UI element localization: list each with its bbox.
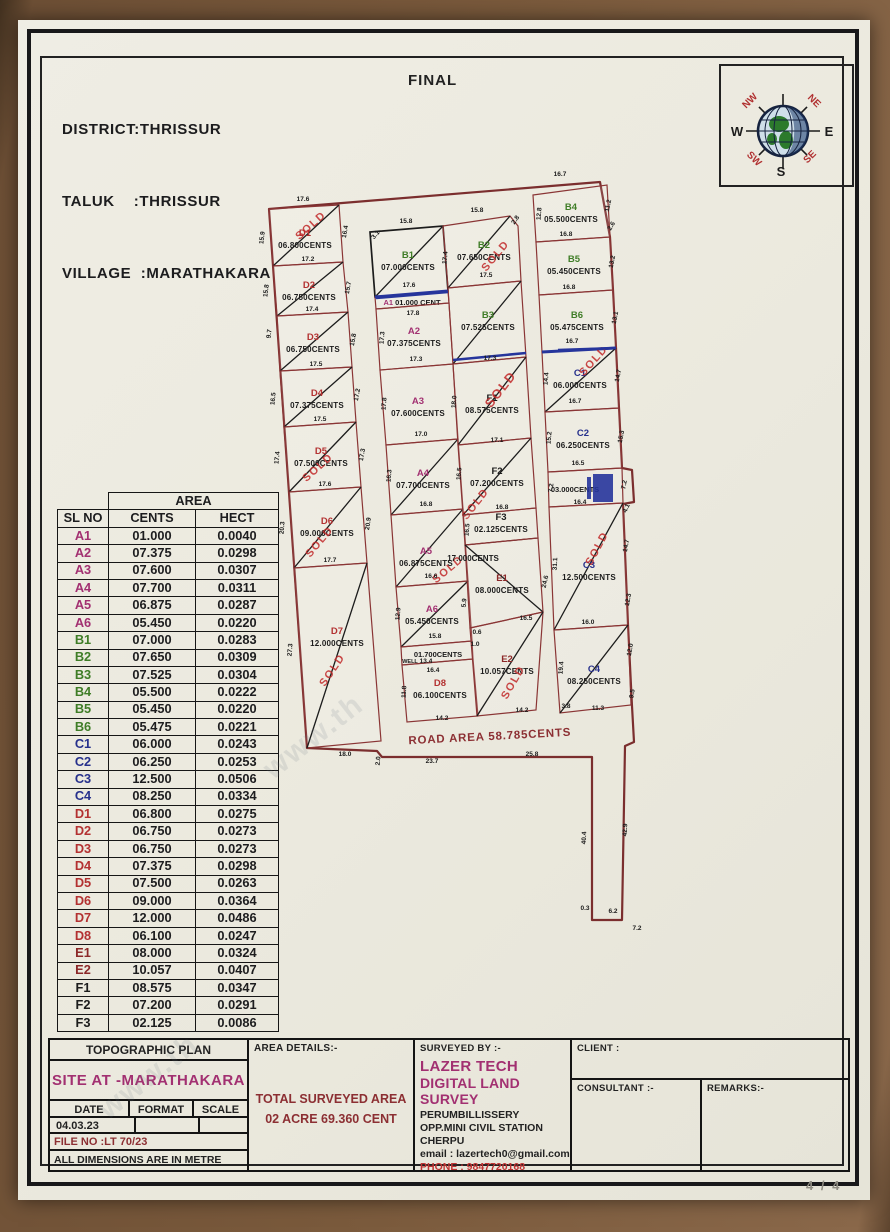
plot-area-label: 07.600CENTS (391, 409, 445, 418)
plot-id-label: D3 (307, 332, 319, 343)
sl-no-cell: F3 (58, 1014, 109, 1031)
sl-no-cell: C3 (58, 771, 109, 788)
file-no: FILE NO :LT 70/23 (50, 1134, 247, 1151)
dimension-label: 7.2 (548, 483, 556, 493)
dimension-label: 1.0 (470, 641, 479, 648)
dimension-label: 17.5 (480, 272, 493, 279)
dimension-label: 16.5 (572, 460, 585, 467)
plot-D8: D806.100CENTS (402, 659, 478, 722)
company-name-1: LAZER TECH (415, 1054, 570, 1075)
dimension-label: 16.8 (420, 501, 433, 508)
cents-cell: 05.475 (109, 719, 196, 736)
table-row-B3: B307.5250.0304 (58, 666, 279, 683)
road-area-label: ROAD AREA 58.785CENTS (408, 727, 571, 748)
table-row-D3: D306.7500.0273 (58, 840, 279, 857)
sl-no-cell: A4 (58, 579, 109, 596)
cents-cell: 07.525 (109, 666, 196, 683)
table-row-B4: B405.5000.0222 (58, 684, 279, 701)
dimension-label: 17.3 (378, 331, 386, 345)
plot-area-label: 07.700CENTS (396, 481, 450, 490)
surveyed-by-label: SURVEYED BY :- (415, 1040, 570, 1054)
dimension-label: 15.2 (545, 431, 553, 445)
plot-area-label: 12.000CENTS (310, 639, 364, 648)
scale-value (200, 1118, 247, 1134)
dimension-label: 18.0 (450, 395, 458, 409)
plot-C4: C408.250CENTS (554, 625, 631, 713)
sl-no-cell: E2 (58, 962, 109, 979)
dimension-label: 16.5 (463, 523, 471, 537)
dimension-label: 5.9 (461, 598, 469, 608)
cents-cell: 05.500 (109, 684, 196, 701)
col-header-hect: HECT (196, 510, 279, 527)
plot-area-label: 08.000CENTS (475, 586, 529, 595)
dimension-label: 16.0 (582, 619, 595, 626)
sl-no-cell: F2 (58, 997, 109, 1014)
hect-cell: 0.0407 (196, 962, 279, 979)
hect-cell: 0.0221 (196, 719, 279, 736)
consultant-block: CONSULTANT :- (572, 1080, 702, 1170)
surveyed-by-block: SURVEYED BY :- LAZER TECH DIGITAL LAND S… (415, 1040, 572, 1170)
plot-id-label: F3 (495, 512, 506, 523)
dimension-label: 17.4 (273, 451, 281, 465)
plot-area-label: 12.500CENTS (562, 573, 616, 582)
sl-no-cell: B2 (58, 649, 109, 666)
sl-no-cell: D3 (58, 840, 109, 857)
plot-id-label: E2 (501, 654, 513, 665)
table-row-A2: A207.3750.0298 (58, 545, 279, 562)
dimension-label: 17.5 (314, 416, 327, 423)
dimension-label: 16.5 (520, 615, 533, 622)
dimension-label: 24.6 (541, 574, 551, 588)
plot-area-label: 05.475CENTS (550, 323, 604, 332)
dimension-label: 17.5 (310, 361, 323, 368)
plot-B3: B307.525CENTS (448, 281, 526, 364)
dimension-label: 16.6 (425, 573, 438, 580)
dimension-label: 17.8 (380, 397, 388, 411)
dimension-label: 17.3 (410, 356, 423, 363)
sl-no-cell: D5 (58, 875, 109, 892)
plot-id-label: D8 (434, 678, 446, 689)
dimension-label: 13.4 (420, 658, 433, 665)
plot-area-label: 07.375CENTS (387, 339, 441, 348)
dimension-label: 20.9 (364, 517, 373, 531)
plot-id-label: A6 (426, 604, 438, 615)
building-symbol (587, 477, 591, 499)
hect-cell: 0.0040 (196, 527, 279, 544)
area-details-block: AREA DETAILS:- TOTAL SURVEYED AREA 02 AC… (249, 1040, 415, 1170)
dimensions-note: ALL DIMENSIONS ARE IN METRE (50, 1151, 247, 1166)
dimension-label: 27.3 (287, 643, 295, 656)
table-row-D6: D609.0000.0364 (58, 892, 279, 909)
sl-no-cell: E1 (58, 945, 109, 962)
plot-id-label: B5 (568, 254, 581, 265)
remarks-label: REMARKS:- (702, 1080, 848, 1094)
table-row-A5: A506.8750.0287 (58, 597, 279, 614)
cents-cell: 01.000 (109, 527, 196, 544)
hect-cell: 0.0309 (196, 649, 279, 666)
sl-no-cell: B1 (58, 632, 109, 649)
hect-cell: 0.0506 (196, 771, 279, 788)
cents-cell: 06.750 (109, 823, 196, 840)
area-table: AREA SL NOCENTSHECT A101.0000.0040A207.3… (57, 492, 279, 1032)
cents-cell: 05.450 (109, 614, 196, 631)
dimension-label: 16.8 (496, 504, 509, 511)
phone-line: PHONE : 9847720168 (415, 1160, 570, 1173)
dimension-label: 0.6 (472, 629, 481, 636)
hect-cell: 0.0304 (196, 666, 279, 683)
dimension-label: 3.8 (561, 703, 570, 710)
table-row-A3: A307.6000.0307 (58, 562, 279, 579)
table-row-A6: A605.4500.0220 (58, 614, 279, 631)
dimension-label: 17.3 (484, 355, 497, 362)
table-row-D8: D806.1000.0247 (58, 927, 279, 944)
sl-no-cell: D8 (58, 927, 109, 944)
dimension-label: 17.2 (353, 388, 362, 402)
sl-no-cell: F1 (58, 979, 109, 996)
table-row-B5: B505.4500.0220 (58, 701, 279, 718)
plot-area-label: 06.100CENTS (413, 691, 467, 700)
dimension-label: 12.0 (626, 643, 635, 657)
hect-cell: 0.0247 (196, 927, 279, 944)
plot-area-label: 02.125CENTS (474, 525, 528, 534)
hect-cell: 0.0311 (196, 579, 279, 596)
dimension-label: 15.8 (400, 218, 413, 225)
dimension-label: 17.7 (324, 557, 337, 564)
plot-id-label: D2 (303, 280, 315, 291)
table-row-F1: F108.5750.0347 (58, 979, 279, 996)
sl-no-cell: A5 (58, 597, 109, 614)
dimension-label: 16.4 (341, 225, 350, 239)
hect-cell: 0.0222 (196, 684, 279, 701)
table-row-F3: F302.1250.0086 (58, 1014, 279, 1031)
plot-area-label: 05.500CENTS (544, 215, 598, 224)
table-row-A4: A407.7000.0311 (58, 579, 279, 596)
dimension-label: 15.3 (617, 429, 626, 443)
sl-no-cell: D1 (58, 806, 109, 823)
table-row-B6: B605.4750.0221 (58, 719, 279, 736)
plot-area-label: 05.450CENTS (405, 617, 459, 626)
dimension-label: 2.0 (375, 756, 383, 766)
scanned-survey-page: DISTRICT:THRISSUR TALUK :THRISSUR VILLAG… (0, 0, 890, 1232)
plot-id-label: E1 (496, 573, 508, 584)
table-corner-cell (58, 493, 109, 510)
date-format-scale-headers: DATE FORMAT SCALE (50, 1101, 247, 1118)
plot-id-label: B2 (478, 240, 490, 251)
dimension-label: 14.4 (542, 372, 550, 386)
table-row-C2: C206.2500.0253 (58, 753, 279, 770)
dimension-label: 40.4 (581, 831, 588, 844)
plot-id-label: D4 (311, 388, 324, 399)
address-line-2: OPP.MINI CIVIL STATION (415, 1121, 570, 1134)
dimension-label: 11.3 (592, 705, 605, 712)
cents-cell: 07.700 (109, 579, 196, 596)
hect-cell: 0.0298 (196, 545, 279, 562)
sl-no-cell: B5 (58, 701, 109, 718)
plot-label: 03.000CENTS (551, 485, 599, 494)
dimension-label: 15.8 (471, 207, 484, 214)
area-details-label: AREA DETAILS:- (249, 1040, 413, 1054)
plot-id-label: A5 (420, 546, 433, 557)
table-row-D4: D407.3750.0298 (58, 858, 279, 875)
plot-area-label: 06.750CENTS (282, 293, 336, 302)
plot-area-label: 06.750CENTS (286, 345, 340, 354)
dimension-label: 0.3 (580, 905, 589, 912)
dimension-label: 15.8 (349, 333, 358, 347)
dimension-label: 16.7 (569, 398, 582, 405)
plot-area-label: 05.450CENTS (547, 267, 601, 276)
table-row-C3: C312.5000.0506 (58, 771, 279, 788)
dimension-label: 2.8 (510, 214, 521, 226)
cents-cell: 08.575 (109, 979, 196, 996)
plot-id-label: B1 (402, 250, 415, 261)
total-area-line2: 02 ACRE 69.360 CENT (249, 1112, 413, 1126)
plot-id-label: F2 (491, 466, 502, 477)
cents-cell: 06.000 (109, 736, 196, 753)
dimension-label: 11.2 (604, 199, 613, 213)
hect-cell: 0.0324 (196, 945, 279, 962)
hect-cell: 0.0243 (196, 736, 279, 753)
plot-area-label: 06.000CENTS (553, 381, 607, 390)
dimension-label: 17.3 (358, 448, 367, 462)
hect-cell: 0.0347 (196, 979, 279, 996)
plot-id-label: D7 (331, 626, 343, 637)
dimension-label: 17.4 (306, 306, 319, 313)
plot-area-label: 06.800CENTS (278, 241, 332, 250)
dimension-label: 42.9 (622, 823, 629, 836)
dimension-label: 16.8 (563, 284, 576, 291)
hect-cell: 0.0086 (196, 1014, 279, 1031)
plot-id-label: A2 (408, 326, 420, 337)
dimension-label: 14.2 (516, 707, 529, 714)
dimension-label: 12.9 (395, 607, 403, 620)
company-name-2: DIGITAL LAND SURVEY (415, 1075, 570, 1107)
sl-no-cell: B4 (58, 684, 109, 701)
annotation-label: 17.000CENTS (447, 554, 499, 563)
address-line-3: CHERPU (415, 1134, 570, 1147)
hect-cell: 0.0273 (196, 840, 279, 857)
email-line: email : lazertech0@gmail.com (415, 1147, 570, 1160)
dimension-label: 17.1 (491, 437, 504, 444)
sl-no-cell: A2 (58, 545, 109, 562)
sl-no-cell: B6 (58, 719, 109, 736)
hect-cell: 0.0220 (196, 701, 279, 718)
dimension-label: 17.4 (441, 251, 449, 265)
sl-no-cell: D4 (58, 858, 109, 875)
remarks-block: REMARKS:- (702, 1080, 848, 1170)
dimension-label: 13.2 (608, 254, 617, 268)
area-header-cell: AREA (109, 493, 279, 510)
table-row-E1: E108.0000.0324 (58, 945, 279, 962)
sl-no-cell: A6 (58, 614, 109, 631)
sl-no-cell: B3 (58, 666, 109, 683)
dimension-label: 14.2 (436, 715, 449, 722)
cents-cell: 10.057 (109, 962, 196, 979)
dimension-label: 15.8 (429, 633, 442, 640)
col-header-cents: CENTS (109, 510, 196, 527)
sl-no-cell: C1 (58, 736, 109, 753)
table-row-D1: D106.8000.0275 (58, 806, 279, 823)
sl-no-cell: C4 (58, 788, 109, 805)
table-column-headers: SL NOCENTSHECT (58, 510, 279, 527)
hect-cell: 0.0307 (196, 562, 279, 579)
dimension-label: 23.7 (426, 758, 439, 765)
dimension-label: 15.8 (262, 284, 271, 298)
plot-id-label: B4 (565, 202, 578, 213)
dimension-label: 19.4 (558, 661, 566, 674)
dimension-label: 31.1 (552, 557, 560, 570)
dimension-label: 16.7 (566, 338, 579, 345)
dimension-label: 11.8 (401, 685, 409, 698)
cents-cell: 08.250 (109, 788, 196, 805)
dimension-label: 6.2 (608, 908, 617, 915)
plot-area-label: 07.200CENTS (470, 479, 524, 488)
dimension-label: 14.7 (614, 368, 623, 382)
cents-cell: 08.000 (109, 945, 196, 962)
cents-cell: 09.000 (109, 892, 196, 909)
dimension-label: 20.3 (278, 521, 286, 535)
plot-id-label: A3 (412, 396, 424, 407)
dimension-label: 25.8 (526, 751, 539, 758)
table-row-B1: B107.0000.0283 (58, 632, 279, 649)
scale-label: SCALE (194, 1101, 247, 1118)
cents-cell: 07.000 (109, 632, 196, 649)
cents-cell: 06.800 (109, 806, 196, 823)
plot-area-label: 07.525CENTS (461, 323, 515, 332)
cents-cell: 07.600 (109, 562, 196, 579)
cents-cell: 06.750 (109, 840, 196, 857)
dimension-label: 17.0 (415, 431, 428, 438)
table-row-E2: E210.0570.0407 (58, 962, 279, 979)
dimension-label: 12.3 (624, 593, 633, 607)
plot-id-label: C4 (588, 664, 601, 675)
date-value: 04.03.23 (50, 1118, 136, 1134)
cents-cell: 07.500 (109, 875, 196, 892)
sl-no-cell: A1 (58, 527, 109, 544)
dimension-label: 13.1 (611, 310, 620, 324)
dimension-label: 7.2 (632, 925, 641, 932)
client-block: CLIENT : (572, 1040, 848, 1080)
plot-area-label: 08.250CENTS (567, 677, 621, 686)
col-header-sl-no: SL NO (58, 510, 109, 527)
sl-no-cell: D6 (58, 892, 109, 909)
hect-cell: 0.0298 (196, 858, 279, 875)
dimension-label: 16.5 (455, 467, 463, 481)
sl-no-cell: C2 (58, 753, 109, 770)
plot-E2: E210.057CENTSSOLD (470, 612, 543, 716)
dimension-label: 16.3 (385, 469, 393, 483)
plot-id-label: B3 (482, 310, 494, 321)
plot-F1: F108.575CENTSSOLD (453, 357, 531, 445)
plot-id-label: B6 (571, 310, 583, 321)
annotation-label: WELL (402, 659, 418, 665)
total-area-line1: TOTAL SURVEYED AREA (249, 1092, 413, 1106)
plot-id-label: C2 (577, 428, 589, 439)
cents-cell: 05.450 (109, 701, 196, 718)
table-row-D5: D507.5000.0263 (58, 875, 279, 892)
sl-no-cell: D7 (58, 910, 109, 927)
cents-cell: 12.500 (109, 771, 196, 788)
dimension-label: 16.5 (269, 392, 277, 406)
format-value (136, 1118, 200, 1134)
table-row-A1: A101.0000.0040 (58, 527, 279, 544)
dimension-label: 15.9 (258, 231, 267, 245)
table-row-C1: C106.0000.0243 (58, 736, 279, 753)
hect-cell: 0.0273 (196, 823, 279, 840)
cents-cell: 06.250 (109, 753, 196, 770)
cents-cell: 07.375 (109, 858, 196, 875)
dimension-label: 12.8 (535, 207, 543, 221)
dimension-label: 17.8 (407, 310, 420, 317)
hect-cell: 0.0220 (196, 614, 279, 631)
dimension-label: 16.4 (574, 499, 587, 506)
hect-cell: 0.0364 (196, 892, 279, 909)
hect-cell: 0.0334 (196, 788, 279, 805)
hect-cell: 0.0291 (196, 997, 279, 1014)
plot-area-label: 06.250CENTS (556, 441, 610, 450)
page-number-note: 4 / 4 (806, 1178, 841, 1193)
table-row-D2: D206.7500.0273 (58, 823, 279, 840)
plot-D6: D609.000CENTSSOLD (289, 487, 367, 568)
hect-cell: 0.0263 (196, 875, 279, 892)
dimension-label: 9.7 (265, 329, 273, 339)
consultant-label: CONSULTANT :- (572, 1080, 700, 1094)
dimension-label: 17.2 (302, 256, 315, 263)
date-format-scale-values: 04.03.23 (50, 1118, 247, 1134)
sl-no-cell: D2 (58, 823, 109, 840)
address-line-1: PERUMBILLISSERY (415, 1107, 570, 1121)
plot-area-label: 07.375CENTS (290, 401, 344, 410)
table-row-B2: B207.6500.0309 (58, 649, 279, 666)
building-symbol (593, 474, 613, 502)
dimension-label: 16.7 (554, 171, 567, 178)
plot-area-label: 07.000CENTS (381, 263, 435, 272)
dimension-label: 14.7 (622, 539, 631, 553)
hect-cell: 0.0275 (196, 806, 279, 823)
dimension-label: 17.6 (403, 282, 416, 289)
cents-cell: 12.000 (109, 910, 196, 927)
table-row-D7: D712.0000.0486 (58, 910, 279, 927)
dimension-label: 15.7 (344, 281, 353, 295)
dimension-label: 18.0 (339, 751, 352, 758)
cents-cell: 06.100 (109, 927, 196, 944)
hect-cell: 0.0287 (196, 597, 279, 614)
dimension-label: 16.8 (560, 231, 573, 238)
cents-cell: 07.200 (109, 997, 196, 1014)
dimension-label: 17.6 (319, 481, 332, 488)
dimension-label: 16.4 (427, 667, 440, 674)
sl-no-cell: A3 (58, 562, 109, 579)
hect-cell: 0.0283 (196, 632, 279, 649)
table-row-C4: C408.2500.0334 (58, 788, 279, 805)
cents-cell: 07.650 (109, 649, 196, 666)
plot-id-label: A4 (417, 468, 430, 479)
client-label: CLIENT : (572, 1040, 848, 1054)
hect-cell: 0.0486 (196, 910, 279, 927)
dimension-label: 17.6 (297, 196, 310, 203)
cents-cell: 07.375 (109, 545, 196, 562)
table-row-F2: F207.2000.0291 (58, 997, 279, 1014)
cents-cell: 06.875 (109, 597, 196, 614)
dimension-label: 7.2 (620, 479, 629, 490)
plot-C3: C312.500CENTSSOLD (549, 503, 628, 630)
dimension-label: 9.5 (628, 688, 637, 698)
